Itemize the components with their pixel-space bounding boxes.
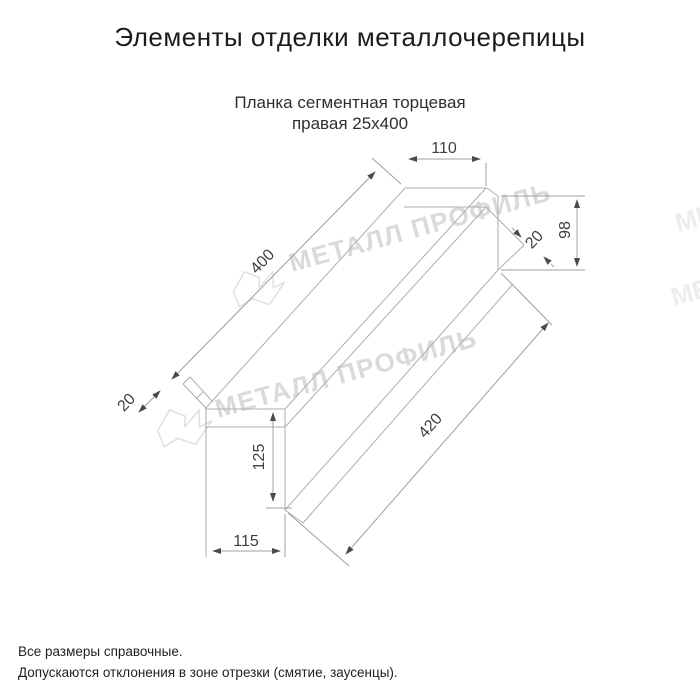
dim-width-bottom: 115: [233, 533, 259, 550]
drawing-page: Элементы отделки металлочерепицы Планка …: [0, 0, 700, 700]
dim-hem-right: 20: [522, 228, 547, 253]
footer-note-1: Все размеры справочные.: [18, 644, 183, 659]
watermark-fragment: МЕ: [672, 198, 700, 237]
dim-hem-left: 20: [114, 390, 139, 415]
footer-note-2: Допускаются отклонения в зоне отрезки (с…: [18, 665, 398, 680]
watermark-text: МЕТАЛЛ ПРОФИЛЬ: [286, 177, 555, 278]
dim-length-bottom: 420: [415, 410, 446, 441]
technical-drawing: МЕТАЛЛ ПРОФИЛЬ МЕТАЛЛ ПРОФИЛЬ МЕ МЕ: [0, 0, 700, 700]
watermark-fragment: МЕ: [668, 272, 700, 311]
dim-height-right: 98: [557, 221, 574, 239]
dim-width-top: 110: [431, 140, 457, 157]
dim-height-left: 125: [251, 444, 268, 471]
